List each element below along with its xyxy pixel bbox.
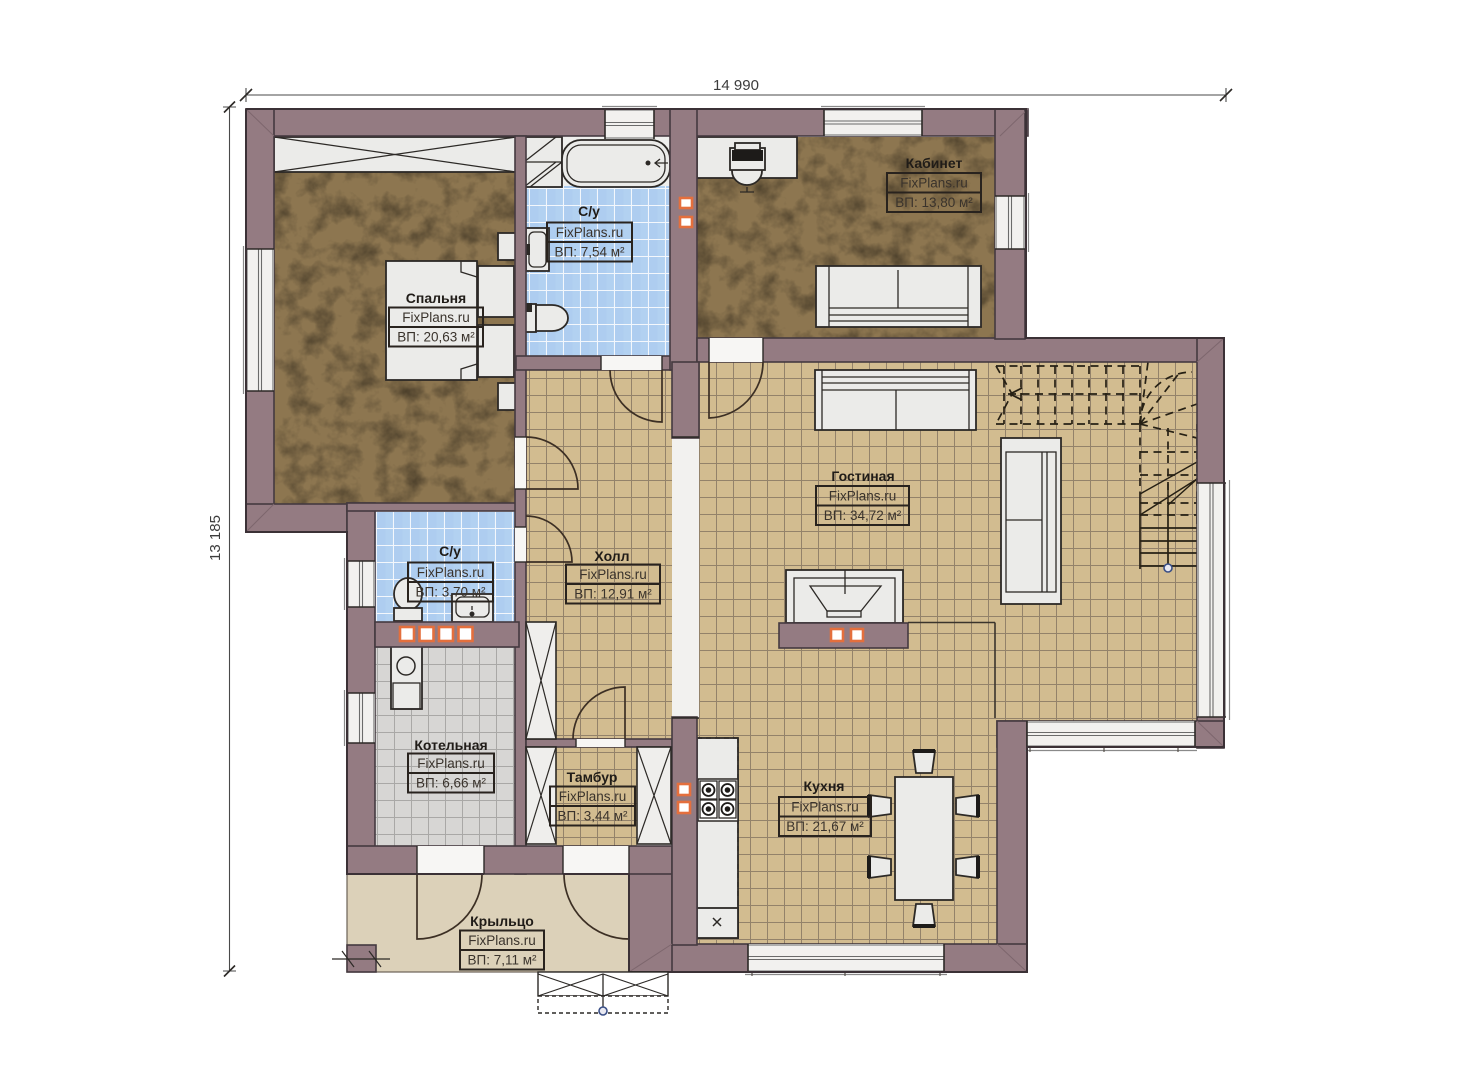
svg-text:ВП: 20,63 м²: ВП: 20,63 м²	[397, 330, 475, 345]
svg-text:ВП: 12,91 м²: ВП: 12,91 м²	[574, 587, 652, 602]
svg-text:Гостиная: Гостиная	[831, 468, 894, 484]
svg-text:FixPlans.ru: FixPlans.ru	[417, 756, 485, 771]
svg-text:FixPlans.ru: FixPlans.ru	[900, 176, 968, 191]
svg-text:ВП: 7,11 м²: ВП: 7,11 м²	[467, 953, 537, 968]
svg-text:FixPlans.ru: FixPlans.ru	[791, 800, 859, 815]
svg-text:FixPlans.ru: FixPlans.ru	[556, 225, 624, 240]
svg-text:ВП: 7,54 м²: ВП: 7,54 м²	[554, 245, 625, 260]
svg-text:FixPlans.ru: FixPlans.ru	[468, 933, 536, 948]
svg-text:FixPlans.ru: FixPlans.ru	[829, 489, 897, 504]
svg-text:ВП: 13,80 м²: ВП: 13,80 м²	[895, 195, 973, 210]
svg-text:14 990: 14 990	[713, 77, 759, 94]
svg-text:Тамбур: Тамбур	[567, 769, 618, 785]
svg-text:ВП: 3,70 м²: ВП: 3,70 м²	[415, 585, 486, 600]
svg-text:Крыльцо: Крыльцо	[470, 913, 534, 929]
svg-text:13 185: 13 185	[207, 515, 224, 561]
svg-text:ВП: 6,66 м²: ВП: 6,66 м²	[416, 776, 487, 791]
svg-text:Холл: Холл	[594, 548, 629, 564]
svg-text:FixPlans.ru: FixPlans.ru	[559, 789, 627, 804]
svg-text:Кухня: Кухня	[804, 778, 845, 794]
svg-text:ВП: 34,72 м²: ВП: 34,72 м²	[824, 508, 902, 523]
svg-text:ВП: 21,67 м²: ВП: 21,67 м²	[786, 819, 864, 834]
svg-text:FixPlans.ru: FixPlans.ru	[579, 567, 647, 582]
svg-text:С/у: С/у	[439, 543, 461, 559]
svg-text:С/у: С/у	[578, 203, 600, 219]
svg-text:Котельная: Котельная	[414, 737, 487, 753]
svg-text:ВП: 3,44 м²: ВП: 3,44 м²	[557, 809, 628, 824]
svg-text:FixPlans.ru: FixPlans.ru	[417, 565, 485, 580]
svg-text:Спальня: Спальня	[406, 290, 466, 306]
svg-text:FixPlans.ru: FixPlans.ru	[402, 310, 470, 325]
svg-text:Кабинет: Кабинет	[906, 155, 963, 171]
